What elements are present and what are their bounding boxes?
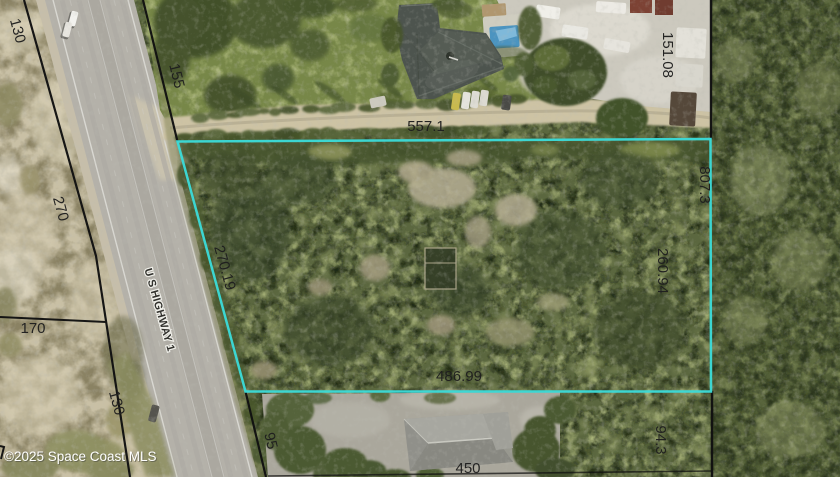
svg-text:170: 170 xyxy=(20,320,45,337)
svg-text:557.1: 557.1 xyxy=(407,118,445,135)
svg-text:151.08: 151.08 xyxy=(659,32,676,78)
svg-text:486.99: 486.99 xyxy=(436,368,482,385)
svg-text:450: 450 xyxy=(455,460,480,477)
svg-text:260.94: 260.94 xyxy=(654,248,671,294)
svg-text:807.3: 807.3 xyxy=(696,166,713,204)
svg-text:94.3: 94.3 xyxy=(652,425,669,454)
svg-text:©2025 Space Coast MLS: ©2025 Space Coast MLS xyxy=(4,449,157,464)
